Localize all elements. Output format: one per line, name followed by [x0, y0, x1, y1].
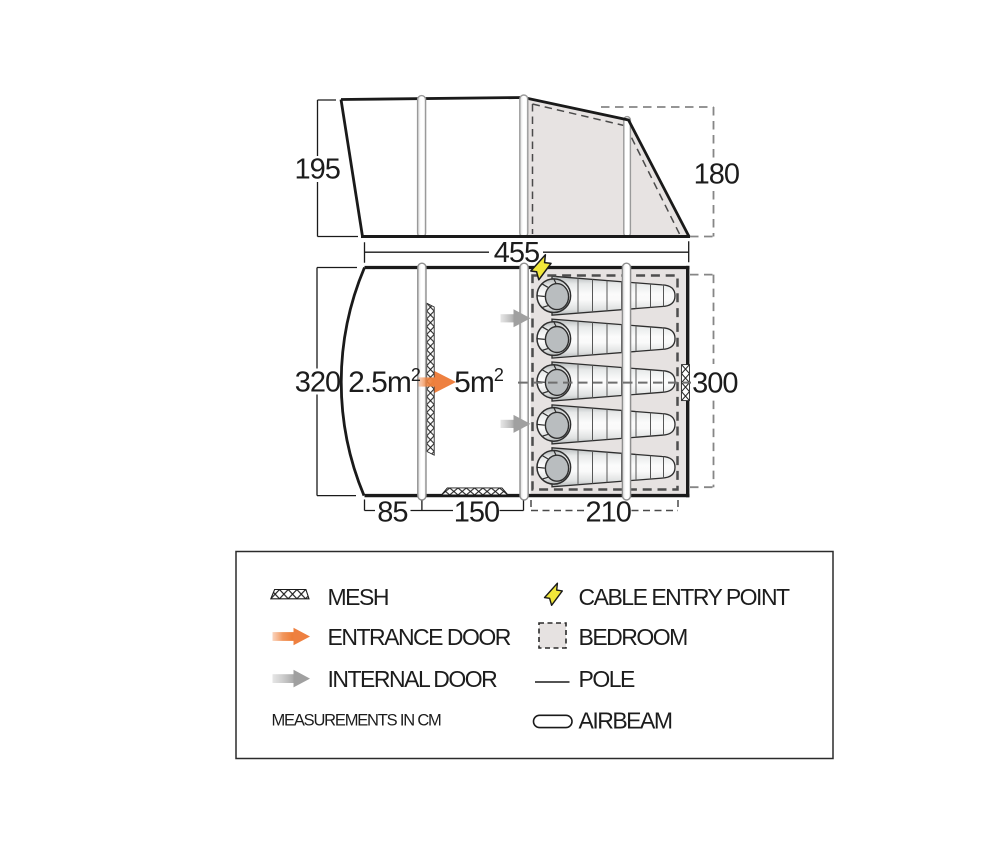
svg-text:MESH: MESH [328, 584, 388, 610]
svg-text:210: 210 [586, 496, 631, 528]
svg-text:455: 455 [494, 237, 539, 269]
svg-text:INTERNAL DOOR: INTERNAL DOOR [328, 666, 498, 692]
svg-text:150: 150 [454, 496, 499, 528]
svg-text:POLE: POLE [579, 666, 636, 692]
svg-text:5m2: 5m2 [454, 365, 504, 399]
svg-text:BEDROOM: BEDROOM [579, 624, 688, 650]
svg-text:2.5m2: 2.5m2 [348, 365, 421, 399]
svg-text:320: 320 [295, 367, 340, 399]
svg-text:300: 300 [692, 367, 737, 399]
svg-text:CABLE ENTRY POINT: CABLE ENTRY POINT [579, 584, 791, 610]
svg-text:85: 85 [377, 496, 407, 528]
svg-text:195: 195 [294, 154, 339, 186]
svg-text:180: 180 [694, 158, 739, 190]
svg-text:MEASUREMENTS IN CM: MEASUREMENTS IN CM [272, 712, 442, 730]
svg-text:AIRBEAM: AIRBEAM [579, 708, 672, 734]
svg-text:ENTRANCE DOOR: ENTRANCE DOOR [328, 624, 511, 650]
